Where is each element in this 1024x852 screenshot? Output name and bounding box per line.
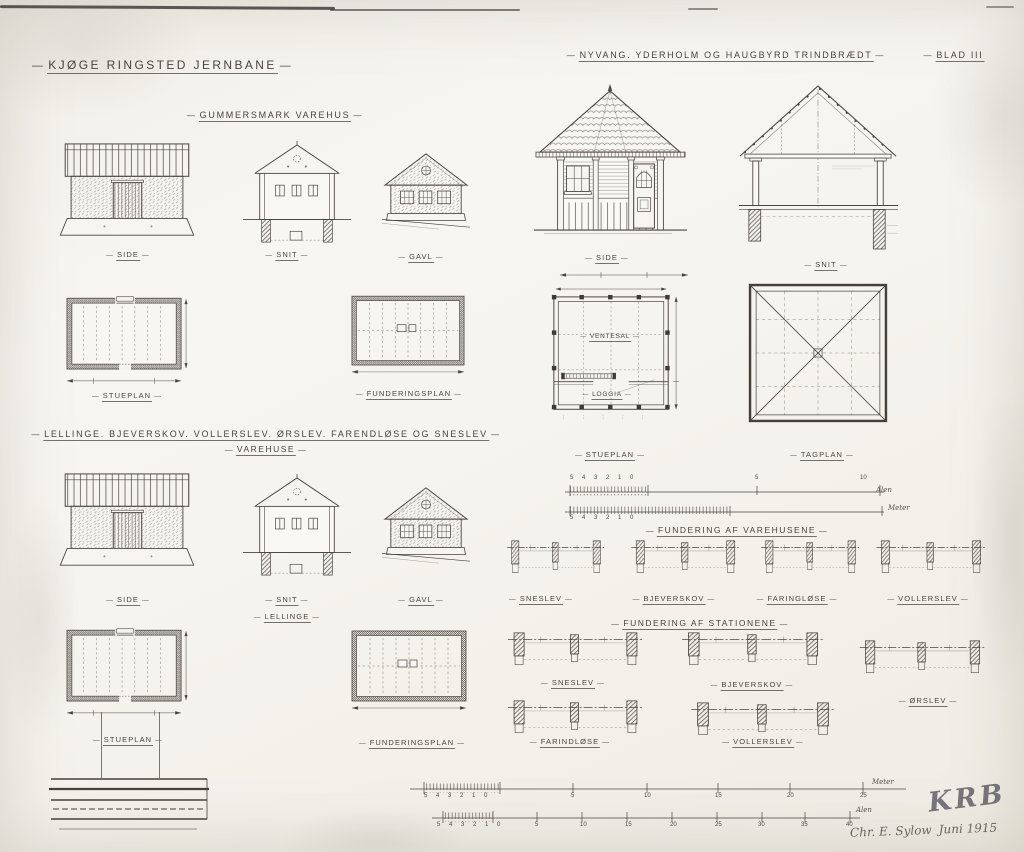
label-stueplan-2: —STUEPLAN—	[91, 735, 165, 744]
platform-drawing	[47, 776, 215, 832]
scale-number: 15	[715, 793, 722, 799]
station-foundation-bjeverskov	[679, 629, 827, 679]
label-loggia: —LOGGIA—	[580, 391, 633, 398]
scale-unit: Alen	[856, 806, 872, 814]
scale-number: 35	[801, 822, 808, 828]
varehuse-subtitle: —VAREHUSE—	[223, 444, 309, 454]
scale-bar-mid-upper	[562, 483, 887, 497]
label-funderingsplan: —FUNDERINGSPLAN—	[354, 389, 464, 398]
connector-line	[159, 712, 160, 778]
scale-unit: Meter	[872, 778, 894, 786]
foundation-section-sneslev	[505, 537, 607, 587]
gummersmark-section	[243, 141, 351, 247]
scale-number: 15	[625, 822, 632, 828]
main-title: —KJØGE RINGSTED JERNBANE—	[30, 58, 295, 72]
scale-number: 5	[755, 475, 758, 481]
nyvang-dimension-line	[556, 270, 692, 280]
sheet-number: —BLAD III	[922, 50, 985, 60]
nyvang-roof-plan	[747, 282, 889, 424]
scale-number: 10	[580, 822, 587, 828]
label-fnd-bjeverskov: —BJEVERSKOV—	[631, 594, 718, 603]
scale-number: 25	[715, 822, 722, 828]
gummersmark-side-elevation	[58, 140, 196, 243]
fundering-varehusene-title: —FUNDERING AF VAREHUSENE—	[644, 525, 830, 535]
handwritten-initials: KRB	[926, 778, 1007, 818]
lellinge-floor-plan	[64, 627, 188, 722]
foundation-section-bjeverskov	[629, 537, 742, 587]
lellinge-foundation-plan	[349, 627, 469, 717]
signature-date: Juni 1915	[938, 821, 997, 837]
scale-unit: Alen	[876, 486, 892, 494]
label-side: —SIDE—	[104, 250, 152, 259]
gummersmark-floor-plan	[64, 295, 188, 390]
label-fnd-faringloese: —FARINGLØSE—	[755, 594, 840, 603]
scale-number: 20	[670, 822, 677, 828]
scale-numbers: 5 4 3 2 1 0	[570, 515, 633, 521]
label-st-sneslev: —SNESLEV—	[539, 678, 607, 687]
label-gavl: —GAVL—	[396, 252, 446, 261]
label-ventesal: —VENTESAL—	[578, 333, 642, 340]
nyvang-side-elevation	[534, 82, 687, 238]
nyvang-title: —NYVANG. YDERHOLM OG HAUGBYRD TRINDBRÆDT…	[565, 50, 887, 60]
scale-number: 10	[644, 793, 651, 799]
paper-stain	[930, 20, 1024, 210]
signature-name: Chr. E. Sylow	[850, 823, 932, 840]
label-side-2: —SIDE—	[104, 595, 152, 604]
label-st-bjeverskov: —BJEVERSKOV—	[709, 680, 796, 689]
station-foundation-oerslev	[857, 637, 988, 687]
label-lellinge: —LELLINGE—	[252, 612, 322, 621]
label-fnd-vollerslev: —VOLLERSLEV—	[885, 594, 971, 603]
label-gavl-2: —GAVL—	[396, 595, 446, 604]
label-stueplan: —STUEPLAN—	[90, 391, 164, 400]
scale-numbers: 5 4 3 2 1 0	[424, 793, 487, 799]
foundation-section-faringloese	[759, 537, 862, 587]
gummersmark-foundation-plan	[349, 293, 467, 380]
label-nyvang-side: —SIDE—	[583, 253, 631, 262]
station-foundation-sneslev	[505, 629, 646, 679]
scan-edge-line	[330, 9, 520, 11]
gummersmark-gable-elevation	[382, 147, 470, 237]
scale-number: 10	[860, 475, 867, 481]
nyvang-floor-plan	[544, 285, 682, 435]
fundering-stationene-title: —FUNDERING AF STATIONENE—	[609, 618, 790, 628]
drawing-sheet: —KJØGE RINGSTED JERNBANE— —GUMMERSMARK V…	[0, 0, 1024, 852]
scan-mark	[688, 8, 718, 10]
label-st-farindloese: —FARINDLØSE—	[528, 737, 612, 746]
lellinge-side-elevation	[58, 470, 196, 573]
label-tagplan: —TAGPLAN—	[788, 450, 856, 459]
scale-number: 20	[787, 793, 794, 799]
label-funderingsplan-2: —FUNDERINGSPLAN—	[357, 738, 467, 747]
scale-number: 25	[860, 793, 867, 799]
scale-number: 5	[571, 793, 574, 799]
label-snit-2: —SNIT—	[263, 595, 310, 604]
label-nyvang-stueplan: —STUEPLAN—	[573, 450, 647, 459]
lellinge-group-title: —LELLINGE. BJEVERSKOV. VOLLERSLEV. ØRSLE…	[29, 429, 502, 439]
label-st-vollerslev: —VOLLERSLEV—	[720, 737, 806, 746]
nyvang-section	[737, 77, 900, 253]
gummersmark-title: —GUMMERSMARK VAREHUS—	[185, 110, 365, 120]
label-nyvang-snit: —SNIT—	[802, 260, 849, 269]
lellinge-section	[243, 474, 351, 580]
label-snit: —SNIT—	[263, 250, 310, 259]
scale-number: 5	[535, 822, 538, 828]
scale-numbers: 5 4 3 2 1 0	[437, 822, 500, 828]
scan-mark	[986, 6, 1014, 8]
lellinge-gable-elevation	[382, 481, 470, 571]
scale-number: 30	[758, 822, 765, 828]
foundation-section-vollerslev	[874, 537, 988, 587]
connector-line	[101, 712, 102, 778]
label-fnd-sneslev: —SNESLEV—	[507, 594, 575, 603]
scale-unit: Meter	[888, 504, 910, 512]
scale-numbers: 5 4 3 2 1 0	[570, 475, 633, 481]
label-st-oerslev: —ØRSLEV—	[897, 696, 960, 705]
